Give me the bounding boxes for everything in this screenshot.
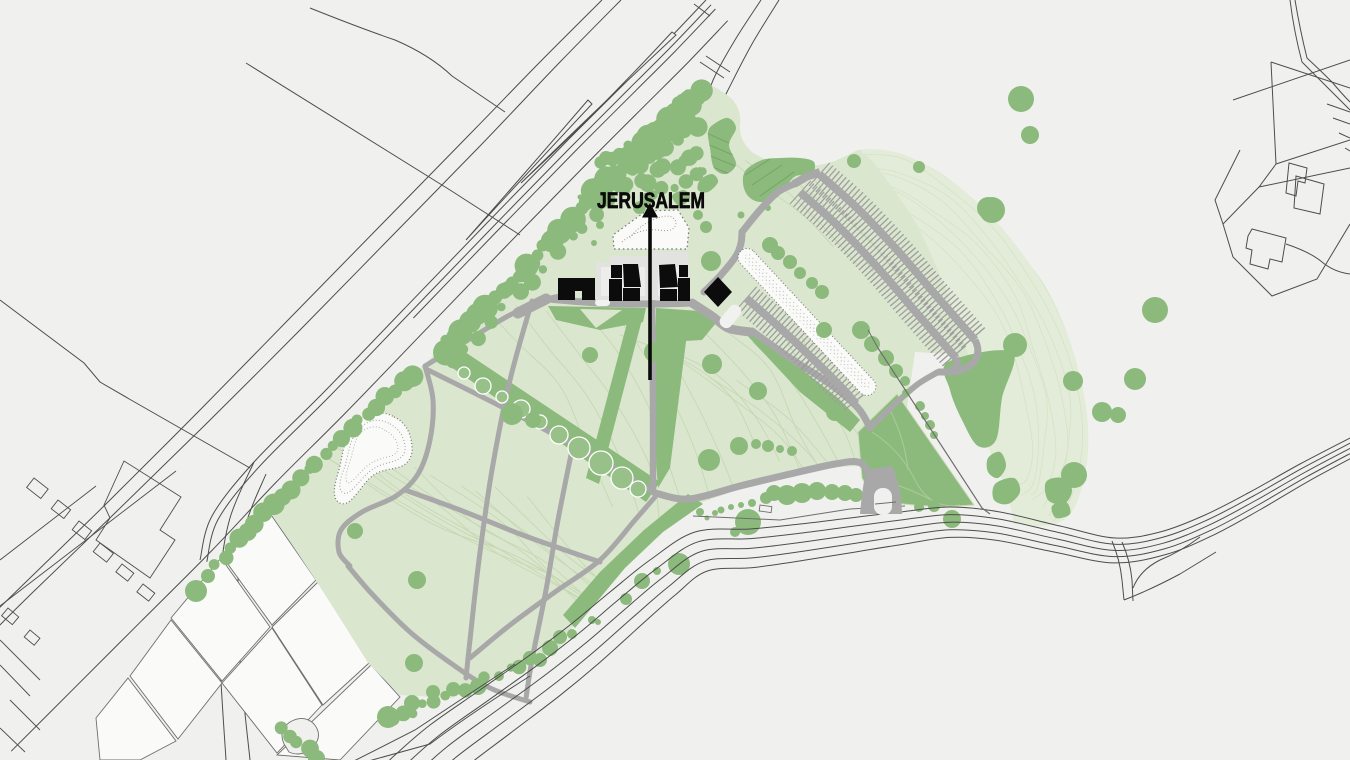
svg-text:JERUSALEM: JERUSALEM xyxy=(597,188,705,213)
